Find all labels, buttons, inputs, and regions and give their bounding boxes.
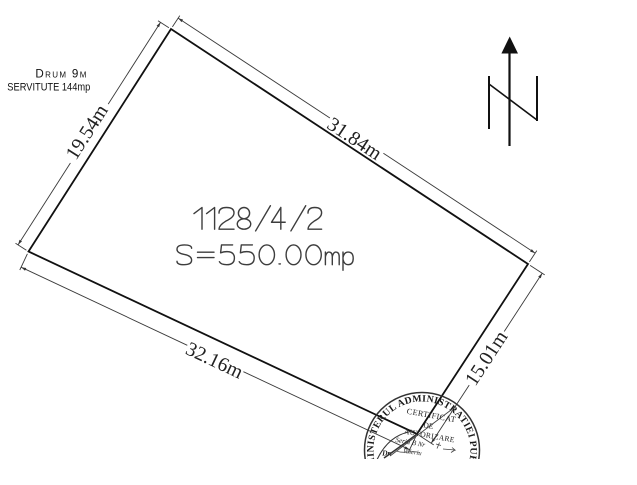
svg-text:Drum 9m: Drum 9m [35, 68, 86, 81]
svg-text:SERVITUTE 144mp: SERVITUTE 144mp [7, 81, 90, 93]
